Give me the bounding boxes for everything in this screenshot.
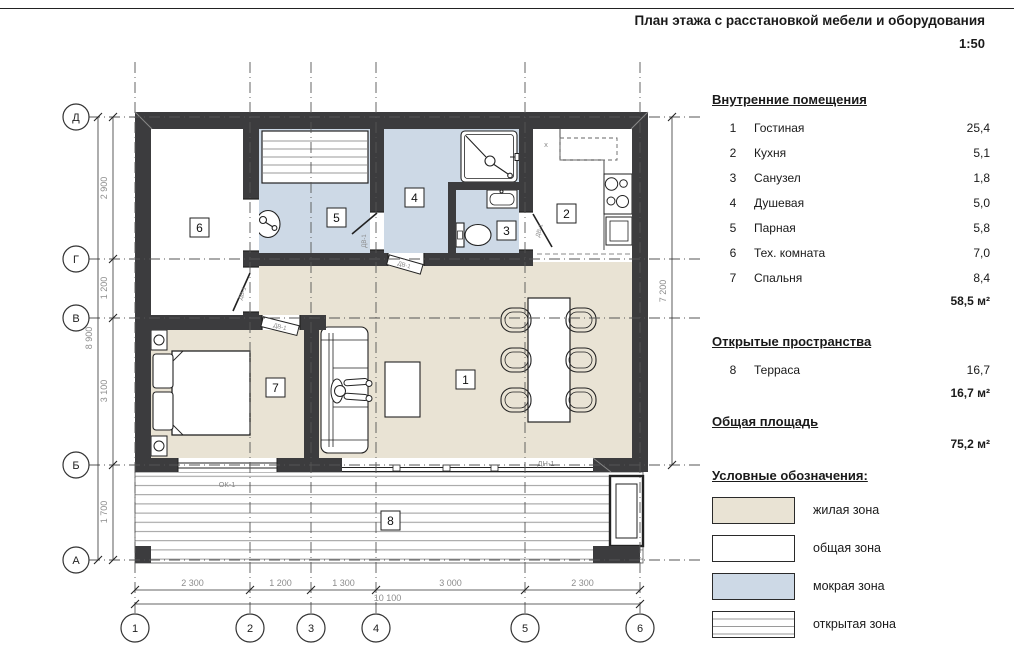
open-spaces-section: Открытые пространства 8Терраса16,7 16,7 … <box>712 334 990 400</box>
drawing-sheet: План этажа с расстановкой мебели и обору… <box>0 0 1014 657</box>
terrace-bench <box>610 476 643 546</box>
total-area-heading: Общая площадь <box>712 414 990 429</box>
interior-rooms-section: Внутренние помещения 1Гостиная25,4 2Кухн… <box>712 92 990 308</box>
svg-text:1 700: 1 700 <box>99 501 109 524</box>
axis-col-3: 3 <box>297 614 325 642</box>
shower-tray <box>461 131 519 182</box>
svg-text:6: 6 <box>637 623 643 635</box>
coffee-table <box>385 362 420 417</box>
interior-total: 58,5 м² <box>712 294 990 308</box>
nightstand <box>151 436 167 456</box>
legend-section: Условные обозначения: жилая зона общая з… <box>712 468 990 649</box>
axis-col-2: 2 <box>236 614 264 642</box>
svg-text:4: 4 <box>411 191 418 205</box>
bathroom-sink <box>487 190 517 208</box>
window-label: ОК-1 <box>219 480 236 489</box>
pillow <box>153 354 173 388</box>
room-tag-8: 8 <box>381 511 400 530</box>
table-row: 6Тех. комната7,0 <box>712 240 990 265</box>
svg-text:1: 1 <box>132 623 138 635</box>
axis-row-a: А <box>63 547 89 573</box>
axis-col-6: 6 <box>626 614 654 642</box>
open-spaces-heading: Открытые пространства <box>712 334 990 349</box>
room-tag-1: 1 <box>456 370 475 389</box>
svg-text:Д: Д <box>72 112 80 124</box>
svg-text:3: 3 <box>308 623 314 635</box>
legend-item: общая зона <box>712 535 990 562</box>
room-tag-7: 7 <box>266 378 285 397</box>
axis-row-b: Б <box>63 452 89 478</box>
total-area-section: Общая площадь 75,2 м² <box>712 414 990 451</box>
svg-text:3: 3 <box>503 224 510 238</box>
open-spaces-total: 16,7 м² <box>712 386 990 400</box>
svg-text:1 200: 1 200 <box>99 277 109 300</box>
svg-text:Б: Б <box>72 460 79 472</box>
svg-text:3 000: 3 000 <box>439 578 462 588</box>
legend-item: открытая зона <box>712 611 990 638</box>
svg-text:2 300: 2 300 <box>571 578 594 588</box>
pillow <box>153 392 173 430</box>
svg-text:3 100: 3 100 <box>99 380 109 403</box>
legend-swatch-wet <box>712 573 795 600</box>
svg-text:8: 8 <box>387 514 394 528</box>
nightstand <box>151 330 167 350</box>
table-row: 8Терраса16,7 <box>712 357 990 382</box>
svg-text:2: 2 <box>247 623 253 635</box>
legend-heading: Условные обозначения: <box>712 468 990 483</box>
legend-item: жилая зона <box>712 497 990 524</box>
toilet <box>456 223 491 247</box>
svg-text:2: 2 <box>563 207 570 221</box>
axis-col-5: 5 <box>511 614 539 642</box>
svg-text:В: В <box>72 313 79 325</box>
room-tag-3: 3 <box>497 221 516 240</box>
svg-text:5: 5 <box>333 211 340 225</box>
svg-text:Г: Г <box>73 254 79 266</box>
room-tag-4: 4 <box>405 188 424 207</box>
kitchen-x-mark: x <box>544 140 548 149</box>
bed <box>153 351 250 435</box>
axis-row-g: Г <box>63 246 89 272</box>
stove <box>604 174 632 214</box>
legend-swatch-open <box>712 611 795 638</box>
table-row: 1Гостиная25,4 <box>712 115 990 140</box>
svg-text:4: 4 <box>373 623 379 635</box>
svg-text:1 200: 1 200 <box>269 578 292 588</box>
kitchen-appliance <box>606 217 632 245</box>
table-row: 4Душевая5,0 <box>712 190 990 215</box>
axis-row-d: Д <box>63 104 89 130</box>
svg-text:А: А <box>72 555 80 567</box>
sauna-heater <box>256 211 280 238</box>
legend-swatch-common <box>712 535 795 562</box>
total-area-value: 75,2 м² <box>712 437 990 451</box>
svg-text:7 200: 7 200 <box>658 280 668 303</box>
axis-col-1: 1 <box>121 614 149 642</box>
table-row: 5Парная5,8 <box>712 215 990 240</box>
ext-door-label: ДН-1 <box>537 459 554 468</box>
legend-item: мокрая зона <box>712 573 990 600</box>
room-tag-2: 2 <box>557 204 576 223</box>
table-row: 2Кухня5,1 <box>712 140 990 165</box>
axis-col-4: 4 <box>362 614 390 642</box>
axis-row-v: В <box>63 305 89 331</box>
svg-text:8 900: 8 900 <box>84 327 94 350</box>
table-row: 3Санузел1,8 <box>712 165 990 190</box>
svg-text:7: 7 <box>272 381 279 395</box>
interior-rooms-heading: Внутренние помещения <box>712 92 990 107</box>
svg-text:6: 6 <box>196 221 203 235</box>
table-row: 7Спальня8,4 <box>712 265 990 290</box>
room-tag-5: 5 <box>327 208 346 227</box>
svg-text:2 900: 2 900 <box>99 177 109 200</box>
door-label: ДВ-1 <box>362 234 368 248</box>
svg-text:2 300: 2 300 <box>181 578 204 588</box>
svg-text:1: 1 <box>462 373 469 387</box>
dining-table <box>528 298 570 422</box>
legend-swatch-living <box>712 497 795 524</box>
sauna-bench <box>262 131 368 183</box>
svg-text:10 100: 10 100 <box>374 593 402 603</box>
svg-text:1 300: 1 300 <box>332 578 355 588</box>
svg-text:5: 5 <box>522 623 528 635</box>
room-tag-6: 6 <box>190 218 209 237</box>
